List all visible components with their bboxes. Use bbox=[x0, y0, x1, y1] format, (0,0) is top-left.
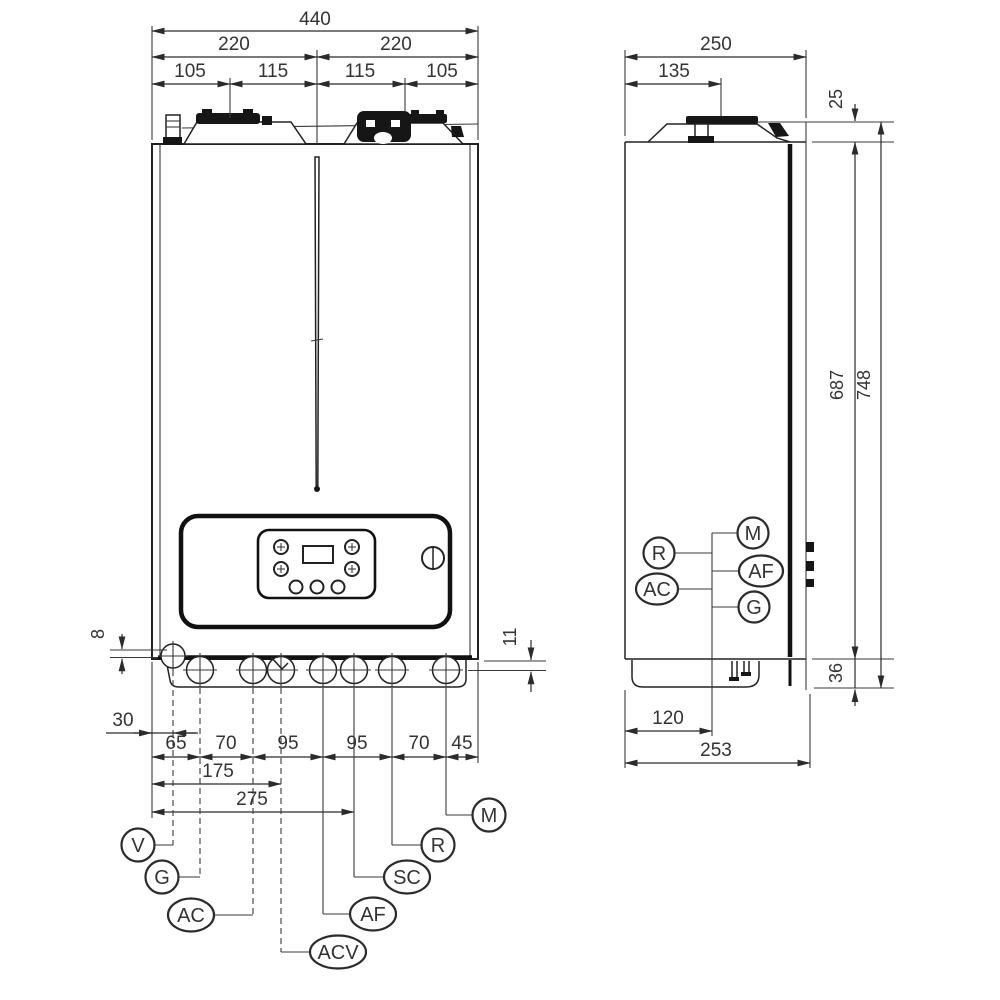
dim-chain-5: 70 bbox=[408, 733, 429, 754]
dim-left-offset: 8 bbox=[88, 629, 108, 639]
svg-text:AC: AC bbox=[177, 905, 205, 927]
mounting-tab bbox=[806, 579, 814, 587]
side-connection-labels: R AC M AF G bbox=[636, 518, 783, 737]
knob bbox=[274, 540, 288, 554]
front-connection-labels: V G AC ACV AF SC bbox=[122, 670, 506, 969]
safety-valve bbox=[163, 115, 182, 145]
front-bottom-dimensions: 30 65 70 95 95 70 45 175 275 bbox=[106, 662, 478, 818]
svg-text:V: V bbox=[131, 835, 145, 857]
dim-bottom-clearance: 36 bbox=[826, 663, 846, 683]
side-label-r: R bbox=[644, 538, 675, 569]
dim-chain-2: 70 bbox=[215, 733, 236, 754]
svg-text:ACV: ACV bbox=[317, 942, 359, 964]
connection-label-ac: AC bbox=[168, 899, 214, 932]
flue-support bbox=[695, 124, 708, 137]
connection-label-af: AF bbox=[350, 898, 396, 931]
boiler-dimension-drawing: 440 220 220 105 115 115 105 8 11 bbox=[0, 0, 1000, 1000]
side-base-outline bbox=[632, 660, 759, 687]
dim-chain-4: 95 bbox=[346, 733, 367, 754]
side-bottom-dimensions: 120 253 bbox=[625, 690, 810, 768]
side-top-profile bbox=[648, 124, 790, 142]
dim-depth: 250 bbox=[700, 34, 732, 55]
dim-right-offset: 11 bbox=[500, 628, 520, 647]
dim-half-left: 220 bbox=[218, 34, 250, 55]
dim-top-clearance: 25 bbox=[826, 89, 846, 109]
dim-quarter-4: 105 bbox=[426, 61, 458, 82]
dim-connection-offset: 120 bbox=[652, 708, 684, 729]
left-top-cap bbox=[184, 109, 306, 144]
svg-text:SC: SC bbox=[393, 867, 421, 889]
mounting-tab bbox=[806, 542, 814, 552]
connection-label-acv: ACV bbox=[310, 936, 366, 969]
connection-label-sc: SC bbox=[384, 861, 430, 894]
knob bbox=[274, 562, 288, 576]
side-label-g: G bbox=[739, 592, 770, 623]
display bbox=[303, 546, 333, 563]
side-label-ac: AC bbox=[636, 574, 678, 605]
dim-chain-6: 45 bbox=[451, 733, 472, 754]
dim-body-height: 687 bbox=[827, 370, 847, 400]
connection-label-g: G bbox=[146, 861, 179, 894]
dim-total-width: 440 bbox=[299, 9, 331, 30]
flue-collar bbox=[686, 116, 758, 124]
dim-quarter-3: 115 bbox=[345, 61, 375, 82]
dim-total-height: 748 bbox=[854, 370, 874, 400]
button bbox=[332, 581, 345, 594]
rear-bracket bbox=[768, 123, 789, 137]
dim-quarter-2: 115 bbox=[258, 61, 288, 82]
svg-text:R: R bbox=[431, 835, 445, 857]
svg-text:R: R bbox=[652, 543, 666, 565]
technical-drawing-svg: 440 220 220 105 115 115 105 8 11 bbox=[0, 0, 1000, 1000]
svg-text:AC: AC bbox=[643, 579, 671, 601]
side-height-dimensions: 25 687 748 36 bbox=[757, 89, 894, 706]
dim-half-right: 220 bbox=[380, 34, 412, 55]
svg-text:AF: AF bbox=[360, 904, 386, 926]
dim-quarter-1: 105 bbox=[174, 61, 206, 82]
svg-text:M: M bbox=[481, 805, 498, 827]
dim-v-offset: 30 bbox=[112, 710, 133, 731]
dim-base-depth: 253 bbox=[700, 740, 732, 761]
pressure-gauge bbox=[422, 546, 444, 570]
svg-text:M: M bbox=[745, 523, 762, 545]
dim-flue-center: 135 bbox=[658, 61, 690, 82]
dim-to-sc: 275 bbox=[236, 789, 268, 810]
side-view: 250 135 25 687 748 36 120 25 bbox=[625, 34, 894, 768]
connection-label-m: M bbox=[473, 799, 506, 832]
knob bbox=[345, 562, 359, 576]
side-label-m: M bbox=[738, 518, 769, 549]
connection-label-v: V bbox=[122, 829, 155, 862]
svg-text:G: G bbox=[746, 597, 762, 619]
button bbox=[290, 581, 303, 594]
knob bbox=[345, 540, 359, 554]
svg-text:G: G bbox=[154, 867, 170, 889]
svg-text:AF: AF bbox=[748, 561, 774, 583]
connection-label-r: R bbox=[422, 829, 455, 862]
control-panel bbox=[181, 516, 450, 627]
side-label-af: AF bbox=[739, 556, 783, 587]
dim-to-acv: 175 bbox=[202, 761, 234, 782]
front-view: 440 220 220 105 115 115 105 8 11 bbox=[88, 9, 546, 969]
dim-chain-1: 65 bbox=[165, 733, 186, 754]
mounting-tab bbox=[806, 561, 814, 571]
button bbox=[311, 581, 324, 594]
right-top-cap-flue bbox=[344, 110, 464, 144]
